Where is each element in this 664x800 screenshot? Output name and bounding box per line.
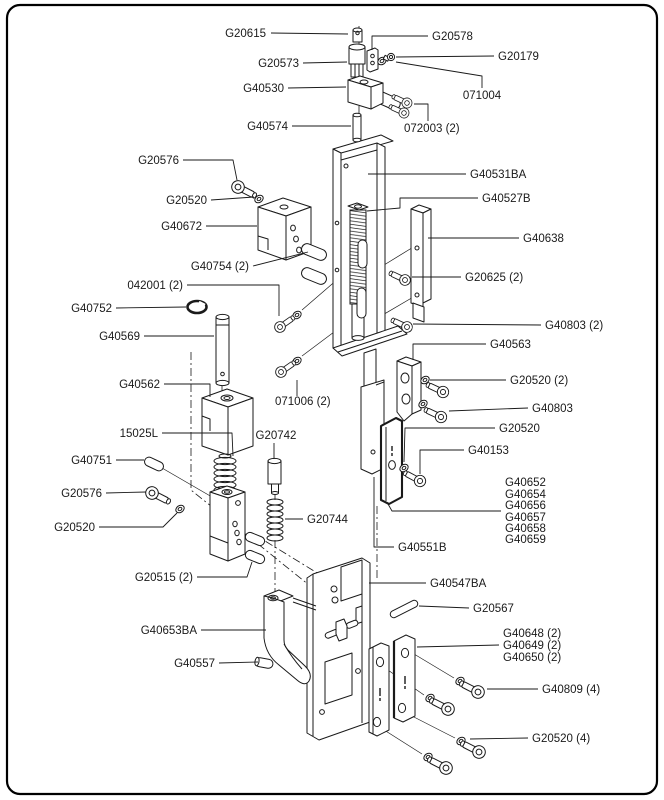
leader-G40562	[164, 384, 210, 397]
leader-G20576-b	[106, 492, 146, 493]
part-label-G40652: G40652	[505, 477, 546, 489]
leader-G40153	[420, 450, 464, 474]
part-label-G40530: G40530	[243, 83, 284, 95]
leader-072003	[414, 104, 428, 121]
part-blade-plate-g40652	[381, 418, 402, 504]
part-g40809-screws	[424, 676, 486, 718]
part-g40752-lockring	[188, 301, 207, 313]
part-g20742-cylinder	[268, 458, 281, 494]
part-g40547ba-plate	[307, 558, 370, 740]
part-label-G40563: G40563	[490, 339, 531, 351]
part-label-G20520-a: G20520	[166, 195, 207, 207]
part-g20578-clip	[367, 48, 378, 72]
leader-G20179	[396, 56, 494, 57]
leader-G20576-a	[183, 160, 237, 180]
part-label-G40648: G40648 (2)	[503, 628, 561, 640]
part-label-G40754: G40754 (2)	[191, 261, 249, 273]
part-label-G40659: G40659	[505, 534, 546, 546]
leader-G20567	[419, 606, 469, 608]
part-g20615-setscrew	[353, 28, 362, 42]
part-label-G20578: G20578	[432, 31, 473, 43]
part-label-G20615: G20615	[225, 28, 266, 40]
part-label-G40562: G40562	[119, 379, 160, 391]
part-g40563-block	[397, 357, 421, 421]
part-label-G40656: G40656	[505, 500, 546, 512]
part-label-G20515: G20515 (2)	[135, 572, 193, 584]
part-label-G40557: G40557	[174, 658, 215, 670]
part-label-G40752: G40752	[71, 303, 112, 315]
part-g20573-standoff	[349, 44, 365, 77]
leader-G40530	[288, 87, 346, 88]
part-label-G40569: G40569	[99, 331, 140, 343]
part-g20576-screw-upper	[230, 179, 265, 205]
part-label-G20576-b: G20576	[61, 488, 102, 500]
part-label-071006: 071006 (2)	[275, 396, 331, 408]
exploded-parts-diagram: G20615G20578G20179G20573G40530071004G405…	[0, 0, 664, 800]
part-label-G40547BA: G40547BA	[430, 578, 487, 590]
part-g20744-spring	[267, 499, 283, 541]
part-label-G20744: G20744	[307, 514, 349, 526]
leader-G20573	[303, 62, 347, 63]
part-label-G20567: G20567	[473, 603, 514, 615]
part-label-G40551B: G40551B	[398, 542, 447, 554]
part-label-G40653BA: G40653BA	[141, 625, 198, 637]
part-label-G20576-a: G20576	[138, 155, 179, 167]
part-label-G40803: G40803	[532, 403, 573, 415]
leader-G40656	[388, 504, 501, 511]
part-label-G40650: G40650 (2)	[503, 652, 561, 664]
part-label-042001: 042001 (2)	[127, 280, 183, 292]
part-label-G40527B: G40527B	[482, 193, 531, 205]
leader-G40563	[413, 344, 486, 360]
leader-G20578	[372, 36, 428, 50]
part-label-071004: 071004	[463, 90, 502, 102]
leader-071004	[396, 62, 482, 88]
part-042001-screw	[273, 310, 303, 335]
leader-G40803-2	[413, 324, 541, 325]
part-g20576-screw-lower	[144, 485, 186, 515]
leader-G20520-4	[470, 738, 528, 739]
leader-G20520-a	[211, 197, 254, 200]
part-g40638-bar	[411, 205, 431, 322]
part-label-G40638: G40638	[523, 233, 564, 245]
part-label-G20179: G20179	[498, 51, 539, 63]
part-g40557-pin	[254, 657, 273, 669]
part-clamp-plate-1	[369, 643, 389, 736]
part-g40754-pins	[300, 242, 328, 286]
part-label-G20520-b: G20520	[499, 423, 540, 435]
part-g40751-pin	[143, 456, 165, 473]
part-label-G40153: G40153	[468, 445, 509, 457]
part-label-G40751: G40751	[71, 455, 112, 467]
diagram-canvas: G20615G20578G20179G20573G40530071004G405…	[0, 0, 664, 800]
part-label-G20520-c: G20520	[54, 522, 95, 534]
part-label-G20520-2: G20520 (2)	[510, 375, 568, 387]
leader-G40803	[449, 408, 528, 411]
part-g20520x4-screws	[422, 736, 487, 777]
part-clamp-plate-2	[394, 635, 415, 722]
part-label-G40649: G40649 (2)	[503, 640, 561, 652]
part-g40569-rod	[216, 314, 229, 385]
leader-G40557	[219, 662, 258, 663]
part-label-G40672: G40672	[161, 221, 202, 233]
part-g40562-block	[202, 389, 253, 455]
leader-G40649	[417, 645, 499, 647]
part-label-G40531BA: G40531BA	[470, 169, 527, 181]
part-label-072003: 072003 (2)	[404, 123, 460, 135]
leader-G20515	[197, 562, 252, 577]
part-label-G40809: G40809 (4)	[542, 684, 600, 696]
leader-G40752	[116, 307, 186, 308]
leader-G20520-c	[99, 513, 177, 527]
part-g40574-pin	[353, 113, 361, 142]
part-g20567-dowel	[389, 599, 419, 619]
part-label-15025L: 15025L	[120, 428, 159, 440]
part-valve-block-lower	[210, 486, 245, 561]
part-g20179-screw	[376, 53, 394, 66]
part-g20625-screws	[387, 268, 414, 334]
part-071006-screw	[274, 356, 303, 380]
part-label-G20573: G20573	[258, 58, 299, 70]
part-label-G40803-2: G40803 (2)	[545, 320, 603, 332]
part-label-G20742: G20742	[256, 430, 297, 442]
part-label-G20520-4: G20520 (4)	[532, 733, 590, 745]
part-label-G40574: G40574	[247, 121, 289, 133]
part-label-G20625: G20625 (2)	[465, 272, 523, 284]
leader-G20615	[271, 33, 348, 34]
